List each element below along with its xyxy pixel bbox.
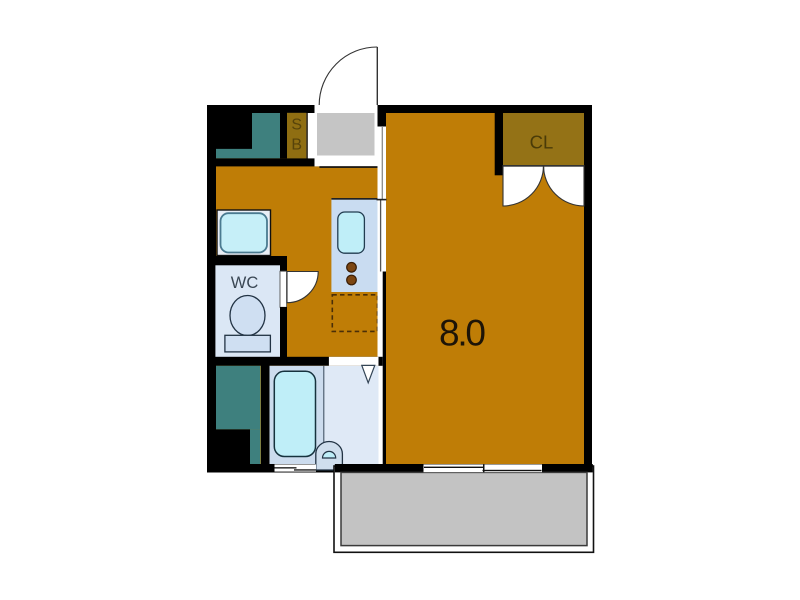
svg-text:S: S bbox=[291, 117, 302, 134]
svg-text:8.0: 8.0 bbox=[439, 313, 486, 354]
svg-text:WC: WC bbox=[231, 274, 259, 292]
svg-text:B: B bbox=[291, 137, 302, 154]
svg-text:CL: CL bbox=[530, 132, 554, 153]
